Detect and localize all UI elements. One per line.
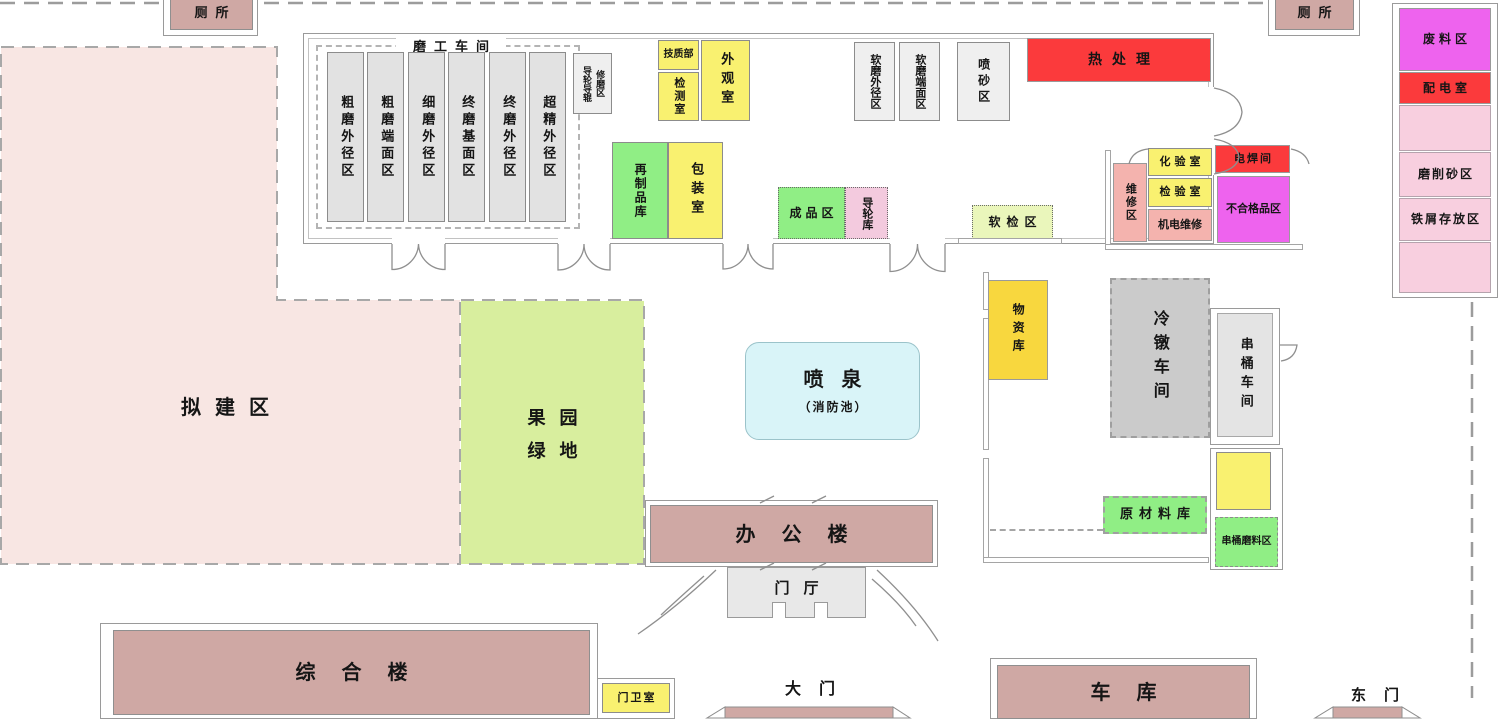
soft-grind-face-label: 软磨端面区: [912, 54, 927, 109]
main-gate-bar: [707, 707, 910, 718]
annex-left-wall: [1105, 150, 1111, 245]
grind-column-3-label: 细磨外径区: [418, 95, 436, 180]
grinding-sand-zone: 磨削砂区: [1399, 152, 1491, 197]
planned-area-lower: [1, 300, 460, 564]
testing-room: 检测室: [658, 72, 699, 121]
soft-check-wall: [958, 238, 1062, 244]
lobby: 门厅: [727, 567, 866, 618]
toilet-right: 厕所: [1275, 0, 1354, 30]
finished-products-zone: 成品区: [778, 187, 845, 239]
reject-zone: 不合格品区: [1217, 176, 1290, 243]
office-building: 办公楼: [650, 505, 933, 563]
courtyard-bottom-wall: [983, 557, 1209, 563]
soft-grind-od-zone: 软磨外径区: [854, 42, 895, 121]
right-strip-empty-2: [1399, 242, 1491, 293]
grind-column-2: 粗磨端面区: [367, 52, 404, 222]
mech-elec-repair: 机电维修: [1148, 209, 1212, 241]
right-strip-empty-1: [1399, 105, 1491, 151]
repair-zone-label: 维修区: [1123, 183, 1138, 222]
barrel-shop-label: 串桶车间: [1236, 337, 1254, 413]
chem-lab: 化验室: [1148, 148, 1212, 176]
fountain-subtitle: （消防池）: [796, 399, 868, 415]
sandblast-zone: 喷砂区: [957, 42, 1010, 121]
packing-room: 包装室: [668, 142, 723, 239]
garage: 车库: [997, 665, 1250, 719]
complex-building: 综合楼: [113, 630, 590, 715]
cold-heading-shop-label: 冷镦车间: [1149, 310, 1171, 406]
east-gate-label: 东门: [1325, 684, 1425, 704]
remade-products-store-label: 再制品库: [632, 163, 648, 219]
grind-column-5-label: 终磨外径区: [499, 95, 517, 180]
guide-wheel-store: 导轮库: [845, 187, 888, 239]
orchard-green-area: [461, 301, 644, 564]
soft-check-zone: 软检区: [972, 205, 1053, 239]
workshop-door-gap-3: [723, 237, 773, 245]
guard-room: 门卫室: [602, 683, 670, 713]
repair-zone: 维修区: [1113, 163, 1147, 242]
heat-treatment-zone: 热处理: [1027, 38, 1211, 82]
lobby-notch-1: [772, 602, 786, 618]
waste-zone: 废料区: [1399, 8, 1491, 71]
barrel-yellow-room: [1216, 452, 1271, 510]
guide-wheel-regrind-col2: 修磨区: [593, 70, 605, 97]
material-store-label: 物资库: [1010, 303, 1026, 357]
workshop-title: 磨工车间: [396, 38, 506, 53]
power-room: 配电室: [1399, 72, 1491, 104]
guide-wheel-store-label: 导轮库: [859, 197, 874, 230]
workshop-door-gap-4: [890, 237, 945, 245]
workshop-door-gap-2: [558, 237, 610, 245]
inspection-room: 检验室: [1148, 178, 1212, 207]
toilet-left: 厕所: [170, 0, 253, 30]
orchard-label-line1: 果园: [480, 405, 625, 429]
grind-column-6: 超精外径区: [529, 52, 566, 222]
east-gate-bar: [1315, 707, 1420, 718]
raw-material-store: 原材料库: [1103, 496, 1207, 534]
tech-dept: 技质部: [658, 40, 699, 70]
soft-grind-od-label: 软磨外径区: [867, 54, 882, 109]
iron-scrap-zone: 铁屑存放区: [1399, 198, 1491, 241]
grind-column-3: 细磨外径区: [408, 52, 445, 222]
courtyard-wall-seg3: [983, 458, 989, 562]
packing-room-label: 包装室: [687, 162, 705, 219]
cold-heading-shop: 冷镦车间: [1110, 278, 1210, 438]
planned-area-label: 拟建区: [100, 392, 350, 418]
grind-column-1: 粗磨外径区: [327, 52, 364, 222]
appearance-room: 外观室: [701, 40, 750, 121]
guide-wheel-regrind-col1: 导轮导辊: [580, 66, 592, 102]
grind-column-2-label: 粗磨端面区: [377, 95, 395, 180]
grind-column-5: 终磨外径区: [489, 52, 526, 222]
orchard-label-line2: 绿地: [480, 438, 625, 462]
grind-column-6-label: 超精外径区: [539, 95, 557, 180]
grind-column-4-label: 终磨基面区: [458, 95, 476, 180]
remade-products-store: 再制品库: [612, 142, 668, 239]
welding-room: 电焊间: [1215, 145, 1290, 173]
factory-site-plan: 拟建区 果园 绿地 厕所 厕所 废料区 配电室 磨削砂区 铁屑存放区 磨工车间 …: [0, 0, 1500, 719]
sandblast-zone-label: 喷砂区: [975, 58, 991, 106]
appearance-room-label: 外观室: [717, 52, 735, 109]
grind-column-1-label: 粗磨外径区: [337, 95, 355, 180]
guide-wheel-regrind-zone: 导轮导辊 修磨区: [573, 53, 612, 114]
fountain-title: 喷泉: [786, 366, 880, 393]
barrel-abrasive-zone: 串桶磨料区: [1215, 517, 1278, 567]
fountain: 喷泉 （消防池）: [745, 342, 920, 440]
barrel-shop: 串桶车间: [1217, 313, 1273, 437]
soft-grind-face-zone: 软磨端面区: [899, 42, 940, 121]
annex-bottom-wall: [1105, 244, 1303, 250]
courtyard-dashed-line: [990, 529, 1103, 531]
grind-column-4: 终磨基面区: [448, 52, 485, 222]
material-store: 物资库: [988, 280, 1048, 380]
testing-room-label: 检测室: [671, 77, 686, 116]
lobby-notch-2: [814, 602, 828, 618]
workshop-door-gap-1: [392, 237, 445, 245]
main-gate-label: 大门: [755, 676, 865, 698]
planned-area-upper: [1, 47, 277, 300]
